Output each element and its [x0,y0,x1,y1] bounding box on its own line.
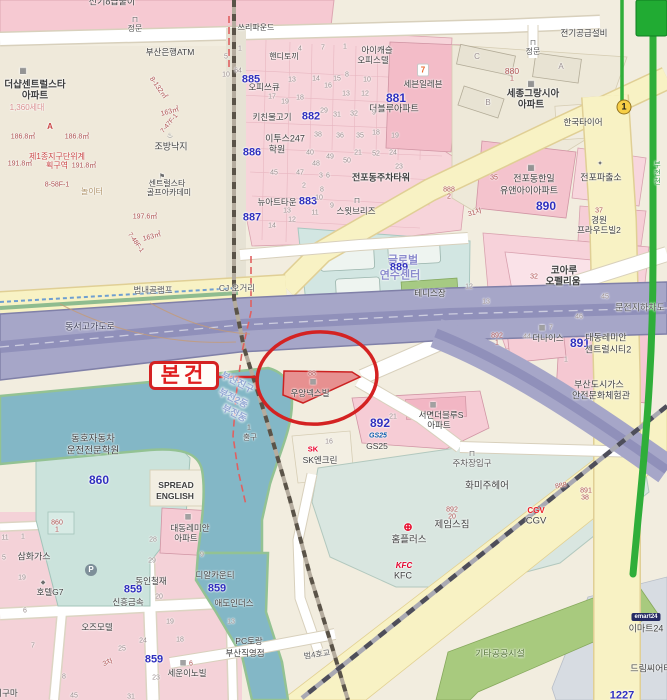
block-spread-english [150,470,204,506]
block-860-1 [48,512,74,534]
map-base-art [0,0,667,700]
block-thesharp [0,46,230,296]
map-canvas[interactable]: 전기8급물이⊓정문부산은행ATM▦더샵센트럴스타아파트1,360세대A186.8… [0,0,667,700]
subject-callout-text: 본건 [161,365,208,386]
subject-callout: 본건 [149,361,219,390]
subway-station-box [636,0,667,36]
building-theblue [386,42,461,152]
